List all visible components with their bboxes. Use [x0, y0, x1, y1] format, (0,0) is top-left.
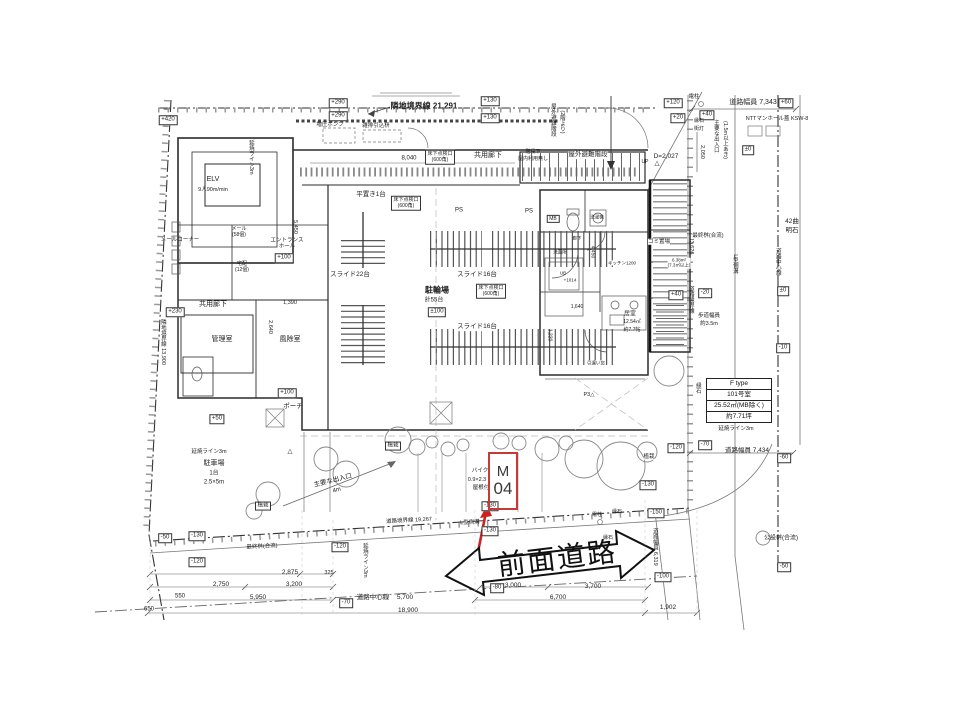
unit-number-row: 101号室: [706, 390, 772, 401]
m04-line2: 04: [494, 480, 513, 498]
unit-tsubo-row: 約7.71坪: [706, 412, 772, 423]
unit-type-row: F type: [706, 378, 772, 390]
m04-marker: M 04: [488, 452, 518, 510]
plan-linework: [0, 0, 960, 720]
unit-info-table: F type 101号室 25.52㎡(MB除く) 約7.71坪: [706, 378, 772, 423]
m04-line1: M: [497, 464, 510, 480]
site-plan-page: +420+290+290+130+130+120+20+60+40±0隣地境界線…: [0, 0, 960, 720]
unit-area-row: 25.52㎡(MB除く): [706, 401, 772, 412]
